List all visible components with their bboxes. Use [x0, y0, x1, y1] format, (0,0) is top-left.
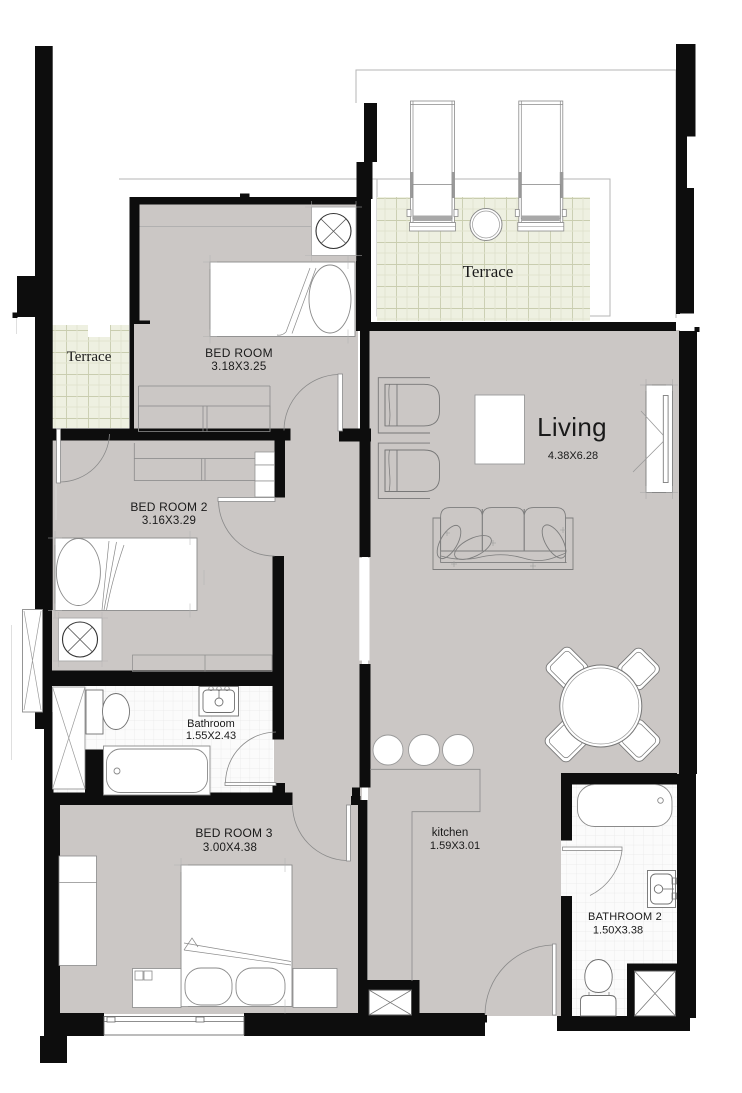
svg-text:Terrace: Terrace [67, 349, 112, 365]
svg-text:BED ROOM 2: BED ROOM 2 [130, 500, 207, 514]
svg-text:Bathroom: Bathroom [187, 718, 235, 730]
svg-text:BATHROOM 2: BATHROOM 2 [588, 911, 662, 923]
svg-text:kitchen: kitchen [432, 827, 468, 839]
svg-text:Living: Living [537, 412, 607, 442]
svg-text:4.38X6.28: 4.38X6.28 [548, 450, 598, 462]
svg-text:BED ROOM: BED ROOM [205, 346, 273, 360]
svg-text:1.50X3.38: 1.50X3.38 [593, 925, 643, 937]
svg-text:3.16X3.29: 3.16X3.29 [142, 515, 196, 527]
svg-text:3.00X4.38: 3.00X4.38 [203, 842, 257, 854]
svg-text:3.18X3.25: 3.18X3.25 [211, 361, 266, 373]
svg-text:1.55X2.43: 1.55X2.43 [186, 730, 236, 742]
svg-text:Terrace: Terrace [463, 262, 514, 281]
svg-text:1.59X3.01: 1.59X3.01 [430, 840, 480, 852]
svg-text:BED ROOM 3: BED ROOM 3 [195, 826, 272, 840]
